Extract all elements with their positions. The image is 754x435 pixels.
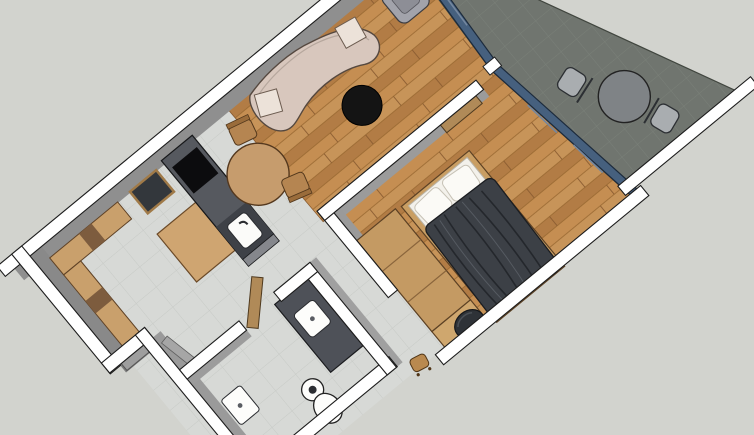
floor-plan-canvas[interactable] (0, 0, 754, 435)
